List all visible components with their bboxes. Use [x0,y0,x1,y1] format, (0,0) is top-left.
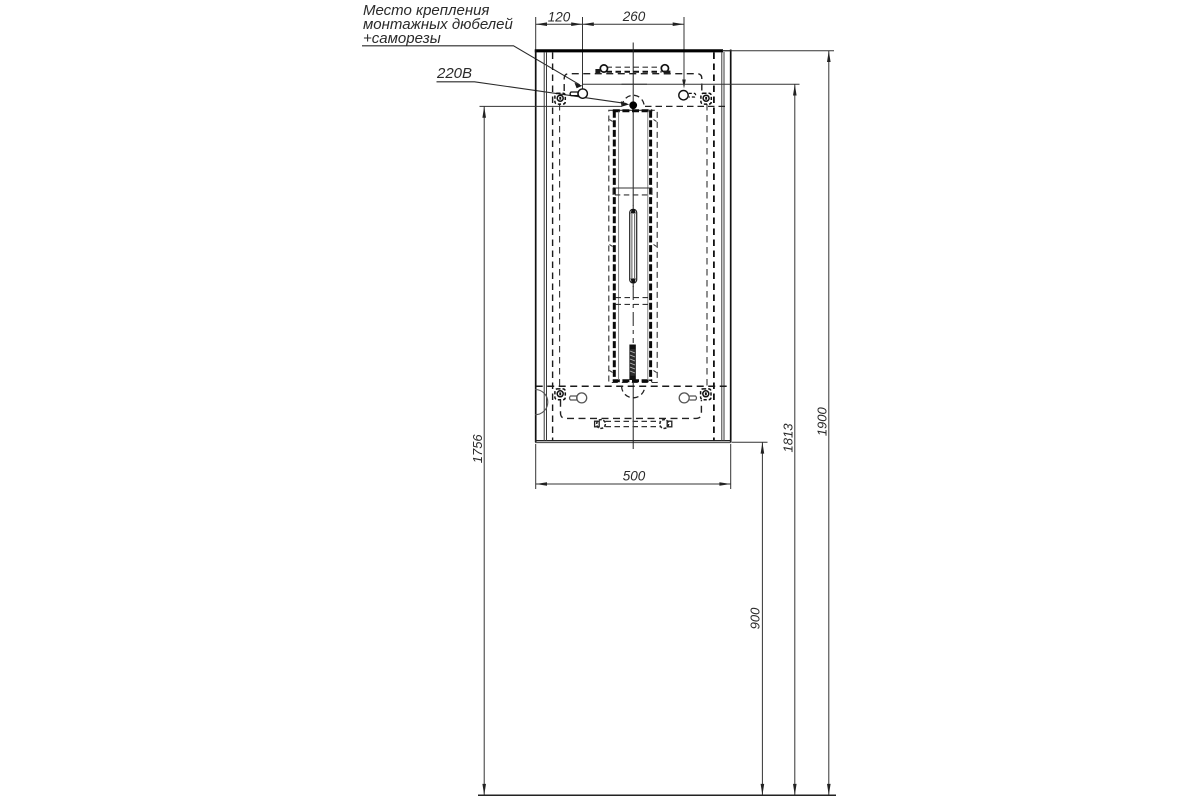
svg-text:900: 900 [748,607,763,629]
svg-text:1900: 1900 [814,406,829,436]
svg-text:500: 500 [623,469,646,484]
svg-text:+саморезы: +саморезы [363,30,441,47]
svg-text:220В: 220В [436,65,472,82]
svg-text:1813: 1813 [780,423,795,453]
svg-text:1756: 1756 [470,434,485,464]
svg-text:260: 260 [622,9,646,24]
svg-text:120: 120 [548,10,571,25]
